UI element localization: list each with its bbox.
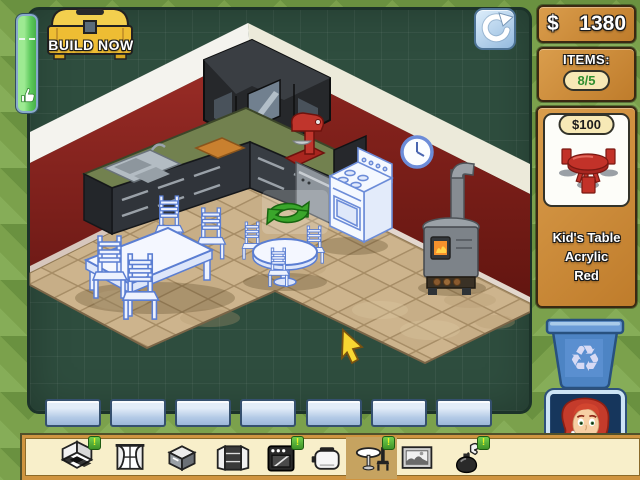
thumbs-up-icon — [19, 87, 35, 109]
items-counter: ITEMS: 8/5 — [537, 47, 636, 102]
toaster-icon — [308, 440, 346, 476]
currency-symbol: $ — [547, 12, 559, 36]
wall-tile[interactable] — [175, 399, 231, 427]
toolbox-icon — [42, 4, 138, 66]
wall-tile[interactable] — [45, 399, 101, 427]
kitchen-island-icon — [163, 440, 201, 476]
rotate-room-button[interactable] — [474, 8, 516, 50]
selected-item-card[interactable]: $100 Kid's Table Acrylic Red — [536, 106, 637, 308]
toolbar-item-picture[interactable] — [394, 438, 438, 478]
money-amount: 1380 — [579, 12, 626, 36]
wall-tile[interactable] — [240, 399, 296, 427]
picture-icon — [398, 440, 436, 476]
toolbar-track: ! — [25, 438, 640, 476]
furniture-toolbar: ! — [20, 433, 640, 480]
wall-tile[interactable] — [371, 399, 427, 427]
money-display: $ 1380 — [537, 5, 636, 43]
build-now-button[interactable]: BUILD NOW — [42, 4, 138, 66]
kids-table-red-preview — [553, 139, 623, 201]
game-screen: BUILD NOW $ 1380 ITEMS: 8/5 $100 — [0, 0, 640, 480]
curtains-icon — [112, 440, 148, 476]
wall-tile[interactable] — [436, 399, 492, 427]
wall-tile[interactable] — [306, 399, 362, 427]
toolbar-item-island[interactable] — [159, 438, 203, 478]
toolbar-item-cabinet[interactable] — [210, 438, 254, 478]
new-items-badge: ! — [477, 436, 490, 450]
new-items-badge: ! — [88, 436, 101, 450]
toolbar-item-oven[interactable]: ! — [258, 438, 302, 478]
toolbar-item-curtains[interactable] — [108, 438, 152, 478]
item-preview-card[interactable]: $100 — [543, 113, 630, 207]
item-price-badge: $100 — [558, 114, 615, 135]
build-now-label: BUILD NOW — [38, 37, 144, 53]
item-name: Kid's Table — [538, 229, 635, 248]
items-count-badge: 8/5 — [563, 70, 609, 91]
recycle-icon: ♻ — [569, 338, 601, 379]
item-material: Acrylic — [538, 248, 635, 267]
wall-tile[interactable] — [110, 399, 166, 427]
level-progress-bar — [16, 14, 38, 113]
item-color: Red — [538, 267, 635, 286]
toolbar-item-table[interactable]: ! — [349, 438, 393, 478]
progress-goal-tick — [19, 38, 35, 40]
toolbar-item-toaster[interactable] — [304, 438, 348, 478]
items-label: ITEMS: — [539, 52, 634, 67]
toolbar-item-vase[interactable]: ! — [444, 438, 488, 478]
recycle-bin[interactable]: ♻ — [541, 312, 629, 397]
wall-clock[interactable] — [402, 137, 432, 167]
new-items-badge: ! — [291, 436, 304, 450]
toolbar-item-floor[interactable]: ! — [55, 438, 99, 478]
rotate-arrow-icon — [476, 10, 514, 48]
mouse-cursor — [342, 330, 362, 363]
cabinet-icon — [214, 440, 252, 476]
